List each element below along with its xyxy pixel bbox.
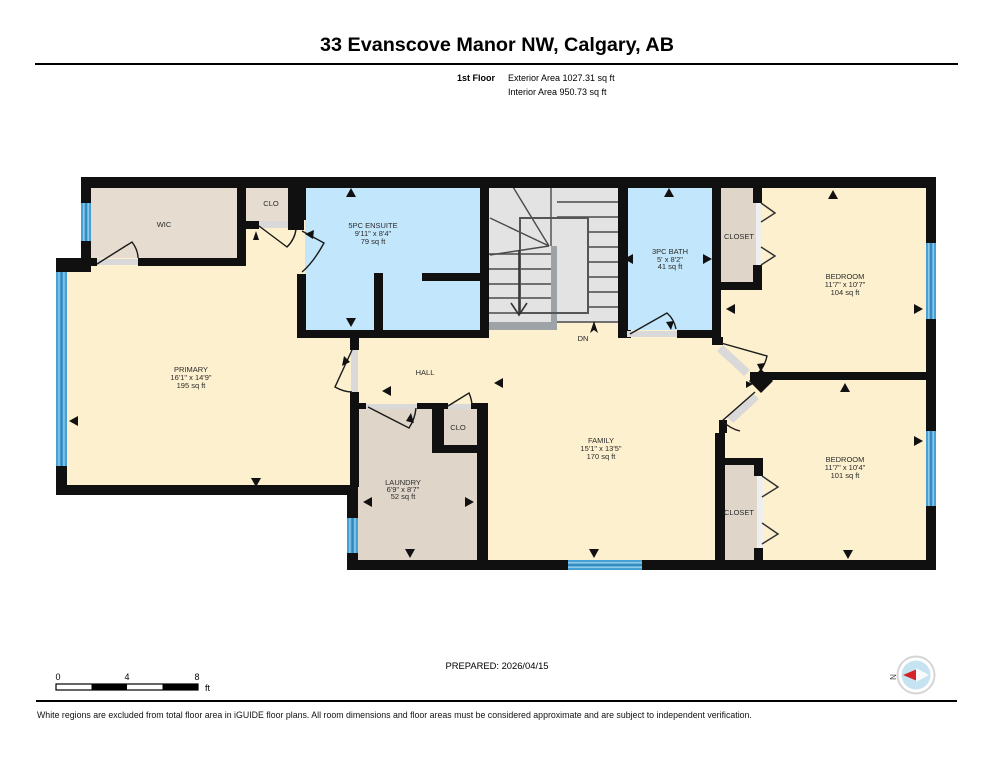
svg-text:104 sq ft: 104 sq ft (831, 288, 861, 297)
svg-text:52 sq ft: 52 sq ft (391, 492, 417, 501)
svg-text:4: 4 (124, 672, 129, 682)
svg-text:ft: ft (205, 683, 211, 693)
svg-text:8: 8 (194, 672, 199, 682)
svg-text:White regions are excluded fro: White regions are excluded from total fl… (37, 710, 752, 720)
svg-text:195 sq ft: 195 sq ft (177, 381, 207, 390)
svg-text:0: 0 (55, 672, 60, 682)
svg-text:CLO: CLO (263, 199, 279, 208)
svg-text:1st Floor: 1st Floor (457, 73, 496, 83)
svg-text:PREPARED: 2026/04/15: PREPARED: 2026/04/15 (445, 660, 548, 671)
svg-text:101 sq ft: 101 sq ft (831, 471, 861, 480)
svg-text:79 sq ft: 79 sq ft (361, 237, 387, 246)
svg-text:33 Evanscove Manor NW, Calgary: 33 Evanscove Manor NW, Calgary, AB (320, 34, 674, 56)
svg-text:WIC: WIC (157, 220, 172, 229)
svg-text:CLO: CLO (450, 423, 466, 432)
svg-text:CLOSET: CLOSET (724, 508, 754, 517)
svg-text:170 sq ft: 170 sq ft (587, 452, 617, 461)
svg-text:Interior Area 950.73 sq ft: Interior Area 950.73 sq ft (508, 87, 607, 97)
svg-text:41 sq ft: 41 sq ft (658, 262, 684, 271)
svg-text:CLOSET: CLOSET (724, 232, 754, 241)
svg-text:Exterior Area 1027.31 sq ft: Exterior Area 1027.31 sq ft (508, 73, 615, 83)
svg-text:N: N (889, 674, 898, 680)
svg-text:HALL: HALL (416, 368, 435, 377)
svg-text:DN: DN (578, 334, 589, 343)
